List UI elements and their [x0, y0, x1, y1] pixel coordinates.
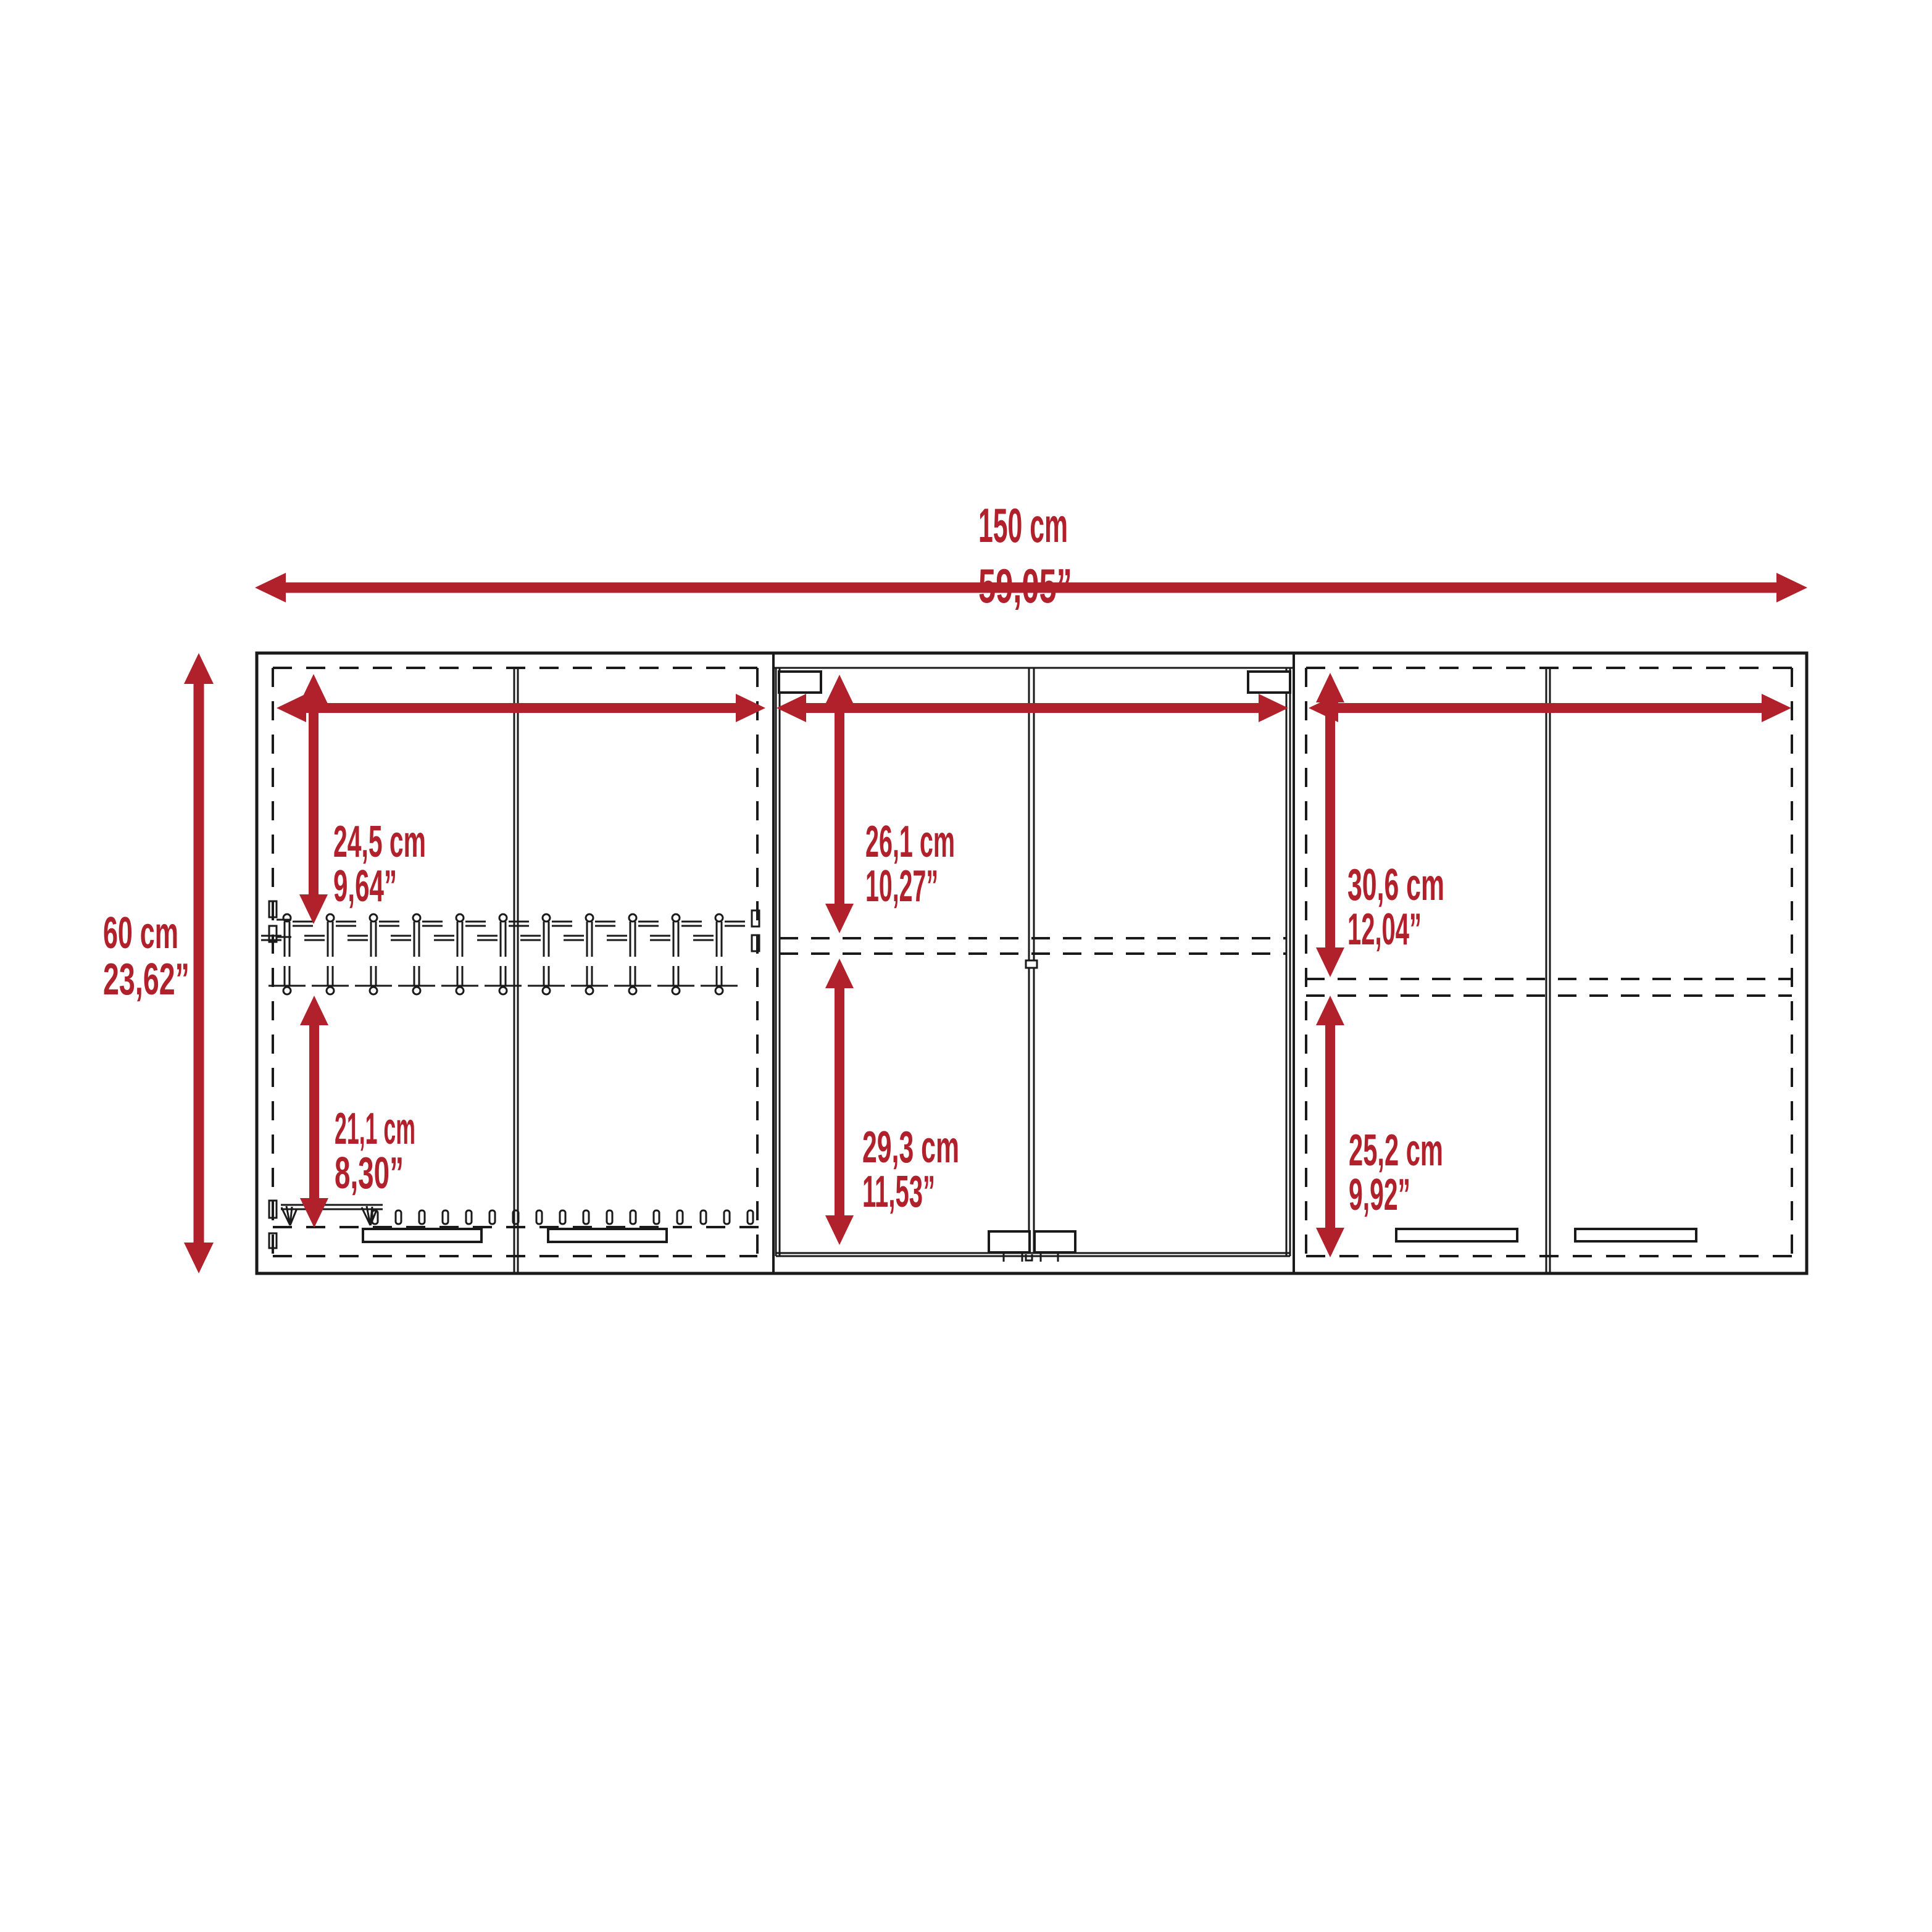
glass-door-handle-left — [989, 1231, 1030, 1252]
label-left-lower-cm: 21,1 cm — [335, 1104, 415, 1154]
label-middle-lower-cm: 29,3 cm — [862, 1123, 959, 1172]
dim-arrow-middle-section-width — [777, 694, 1288, 722]
label-overall-width-inches: 59,05” — [978, 559, 1072, 613]
label-left-upper-inches: 9,64” — [333, 862, 397, 911]
label-right-upper-inches: 12,04” — [1347, 905, 1422, 954]
glassware-rack — [261, 901, 759, 994]
label-right-upper-cm: 30,6 cm — [1347, 860, 1444, 910]
dim-arrow-middle-lower — [825, 959, 854, 1245]
right-unit-door-divider — [1546, 668, 1550, 1273]
label-left-lower-inches: 8,30” — [335, 1149, 404, 1198]
label-middle-upper-cm: 26,1 cm — [865, 817, 955, 867]
dim-arrow-right-lower — [1316, 996, 1344, 1257]
dim-arrow-middle-upper — [825, 675, 854, 933]
glass-door-unit — [775, 668, 1293, 1262]
label-right-lower-inches: 9,92” — [1349, 1170, 1410, 1220]
label-overall-height-inches: 23,62” — [103, 955, 189, 1004]
cabinet-dimension-diagram: 150 cm 59,05” 60 cm 23,62” 24,5 cm 9,64”… — [0, 0, 1932, 1932]
glass-door-hinge-block-right — [1248, 672, 1290, 693]
label-overall-width-cm: 150 cm — [978, 498, 1068, 552]
dim-arrow-right-upper — [1316, 673, 1344, 977]
dim-arrow-left-section-width — [277, 694, 765, 722]
label-middle-upper-inches: 10,27” — [865, 862, 938, 911]
glass-door-hinge-block-left — [779, 672, 821, 693]
label-right-lower-cm: 25,2 cm — [1349, 1126, 1443, 1175]
dim-arrow-left-lower — [300, 996, 328, 1228]
label-middle-lower-inches: 11,53” — [862, 1167, 935, 1217]
left-unit-door-divider — [514, 668, 518, 1273]
label-left-upper-cm: 24,5 cm — [333, 817, 426, 867]
glass-door-handle-right — [1035, 1231, 1075, 1252]
label-overall-height-cm: 60 cm — [103, 909, 178, 958]
